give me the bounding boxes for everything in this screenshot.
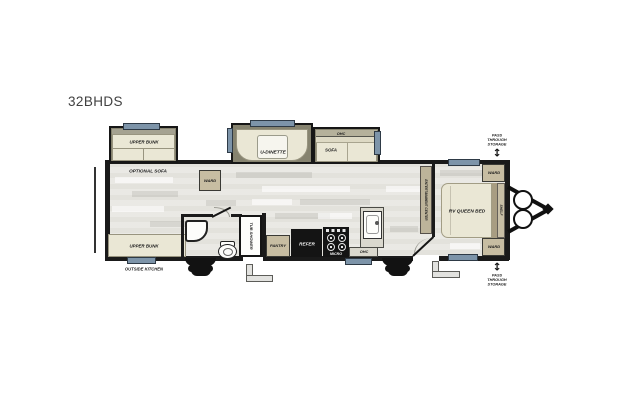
toilet-bowl [223,248,233,256]
faucet-icon [375,221,379,225]
pass-through-top-arrow-icon: ↕ [492,148,501,159]
wardrobe-front-top-label: WARD [487,171,499,176]
window-icon [123,123,160,130]
floor-plank [450,243,480,249]
window-icon [345,258,372,265]
u-dinette-label: U-DINETTE [260,149,286,155]
model-title: 32BHDS [68,95,123,109]
rear-upper-bunk-label: UPPER BUNK [129,243,158,248]
floor-plank [252,199,292,205]
kitchen-ohc-label: OHC [359,250,368,254]
floor-plank [150,221,190,227]
floor-plank [115,177,173,183]
entertainment-center-label: ENTERTAINMENT CENTER [424,179,427,220]
floor-plank [132,191,178,197]
sofa-ohc-label: OHC [337,131,346,135]
burner-icon [338,243,346,251]
floor-plank [318,213,352,219]
floor-plank [236,172,312,178]
floor-plank [262,186,350,192]
entry-step [246,275,273,282]
rv-queen-bed-label: RV QUEEN BED [448,208,485,214]
floor-plank [386,186,420,192]
wardrobe-front-bottom-label: WARD [487,245,499,250]
stove-knobs [326,229,347,232]
floor-plank [390,226,418,232]
wall-front [505,160,510,260]
burner-icon [327,243,335,251]
refrigerator-label: REFER [299,241,315,246]
shelf-label: SHELF [499,204,502,215]
burner-icon [338,234,346,242]
window-icon [374,131,381,155]
entry-step [432,271,460,278]
micro-label: MICRO [330,251,342,255]
window-icon [448,254,478,261]
wheel-icon [388,270,408,276]
dinette-table [257,135,288,159]
propane-tank-icon [513,190,533,210]
wardrobe-mid-label: WARD [204,178,216,183]
floorplan-canvas: 32BHDS UPPER BUNK U-DINETTE OHC [0,0,640,411]
window-icon [448,159,480,167]
pass-through-bottom-arrow-icon: ↕ [492,261,501,272]
pass-through-bottom-label: PASS THROUGH STORAGE [485,273,509,286]
floor-plank [206,200,236,206]
outside-kitchen-label: OUTSIDE KITCHEN [125,266,163,271]
sofa-ohc-cabinet [316,130,377,137]
optional-sofa-label: OPTIONAL SOFA [129,168,167,173]
tub-shower-label: TUB SHOWER [249,222,253,249]
upper-bunk-label: UPPER BUNK [129,139,158,144]
floor-plank [300,199,370,205]
pantry-label: PANTRY [270,244,286,249]
burner-icon [327,234,335,242]
propane-tank-icon [513,209,533,229]
pass-through-top-label: PASS THROUGH STORAGE [485,133,509,146]
bedroom-divider-wall [432,163,435,237]
floor-plank [112,206,164,212]
sofa-cushion-line [347,143,348,161]
bathroom-wall-left [181,214,184,257]
wheel-icon [191,270,211,276]
rear-bumper-line [94,167,96,253]
bunk-divider [143,148,144,161]
window-icon [227,128,233,153]
window-icon [250,120,295,128]
bathroom-wall-right [262,213,266,257]
sofa-label: SOFA [325,147,337,152]
bathroom-wall-top [181,214,213,217]
window-icon [127,257,156,264]
